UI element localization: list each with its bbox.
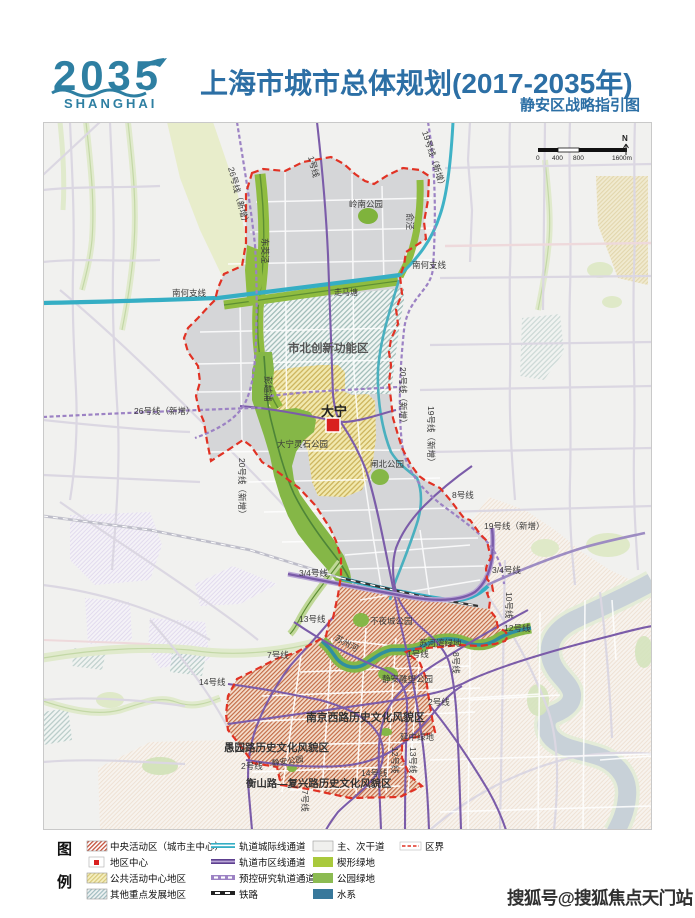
svg-text:南何支线: 南何支线 — [172, 288, 207, 298]
svg-text:1600m: 1600m — [612, 155, 632, 162]
svg-text:彭越浦: 彭越浦 — [263, 376, 273, 402]
svg-text:19号线（新增）: 19号线（新增） — [484, 521, 544, 531]
svg-text:2号线: 2号线 — [241, 761, 263, 771]
svg-text:20号线（新增）: 20号线（新增） — [398, 367, 408, 427]
svg-text:市北创新功能区: 市北创新功能区 — [288, 341, 369, 355]
svg-text:楔形绿地: 楔形绿地 — [337, 857, 376, 869]
svg-text:1号线: 1号线 — [407, 649, 429, 659]
svg-text:南京西路历史文化风貌区: 南京西路历史文化风貌区 — [306, 710, 425, 724]
svg-text:闸北公园: 闸北公园 — [370, 459, 404, 469]
svg-text:其他重点发展地区: 其他重点发展地区 — [110, 889, 187, 901]
svg-text:26号线（新增）: 26号线（新增） — [134, 406, 194, 416]
svg-text:19号线（新增）: 19号线（新增） — [426, 406, 436, 466]
svg-text:3/4号线: 3/4号线 — [492, 565, 521, 575]
svg-text:苏河湾绿地: 苏河湾绿地 — [419, 638, 462, 648]
svg-text:轨道市区线通道: 轨道市区线通道 — [239, 857, 306, 869]
svg-text:13号线: 13号线 — [299, 614, 326, 624]
svg-text:愚园路历史文化风貌区: 愚园路历史文化风貌区 — [224, 741, 329, 754]
svg-text:400: 400 — [552, 155, 563, 162]
svg-text:8号线: 8号线 — [451, 652, 461, 674]
svg-text:水系: 水系 — [337, 889, 356, 901]
svg-text:12号线: 12号线 — [504, 623, 531, 633]
svg-text:地区中心: 地区中心 — [110, 857, 149, 869]
svg-text:14号线: 14号线 — [199, 677, 226, 687]
svg-text:东茭泾: 东茭泾 — [260, 238, 270, 264]
svg-text:南何支线: 南何支线 — [412, 260, 447, 270]
svg-text:N: N — [622, 134, 628, 143]
svg-text:8号线: 8号线 — [452, 490, 474, 500]
svg-text:轨道城际线通道: 轨道城际线通道 — [239, 841, 306, 853]
svg-text:走马塘: 走马塘 — [334, 287, 358, 297]
svg-text:3/4号线: 3/4号线 — [299, 568, 328, 578]
svg-text:公共活动中心地区: 公共活动中心地区 — [110, 873, 187, 885]
svg-text:静安雕塑公园: 静安雕塑公园 — [382, 674, 433, 684]
svg-text:预控研究轨道通道: 预控研究轨道通道 — [239, 873, 316, 885]
svg-text:岭南公园: 岭南公园 — [349, 199, 383, 209]
svg-text:7号线: 7号线 — [300, 790, 310, 812]
svg-text:14号线: 14号线 — [361, 768, 388, 778]
svg-text:大宁灵石公园: 大宁灵石公园 — [277, 439, 328, 449]
svg-text:俞泾: 俞泾 — [405, 213, 415, 231]
svg-text:7号线: 7号线 — [267, 650, 289, 660]
svg-text:延中绿地: 延中绿地 — [400, 732, 435, 742]
svg-text:公园绿地: 公园绿地 — [337, 873, 376, 885]
svg-text:2号线: 2号线 — [428, 697, 450, 707]
svg-text:13号线: 13号线 — [408, 747, 418, 774]
svg-text:区界: 区界 — [425, 842, 445, 853]
svg-text:主、次干道: 主、次干道 — [337, 841, 385, 853]
svg-text:铁路: 铁路 — [239, 889, 259, 901]
svg-text:0: 0 — [536, 155, 540, 162]
svg-text:中央活动区（城市主中心）: 中央活动区（城市主中心） — [110, 841, 224, 853]
svg-text:SHANGHAI: SHANGHAI — [64, 96, 157, 111]
svg-text:不夜城公园: 不夜城公园 — [370, 616, 413, 626]
svg-text:图: 图 — [57, 841, 72, 858]
svg-text:20号线（新增）: 20号线（新增） — [237, 458, 247, 518]
svg-text:800: 800 — [573, 155, 584, 162]
svg-text:衡山路—复兴路历史文化风貌区: 衡山路—复兴路历史文化风貌区 — [246, 777, 392, 790]
svg-text:10号线: 10号线 — [504, 592, 514, 619]
svg-text:12号线: 12号线 — [390, 747, 400, 774]
svg-text:例: 例 — [57, 873, 72, 891]
svg-text:大宁: 大宁 — [321, 404, 347, 419]
